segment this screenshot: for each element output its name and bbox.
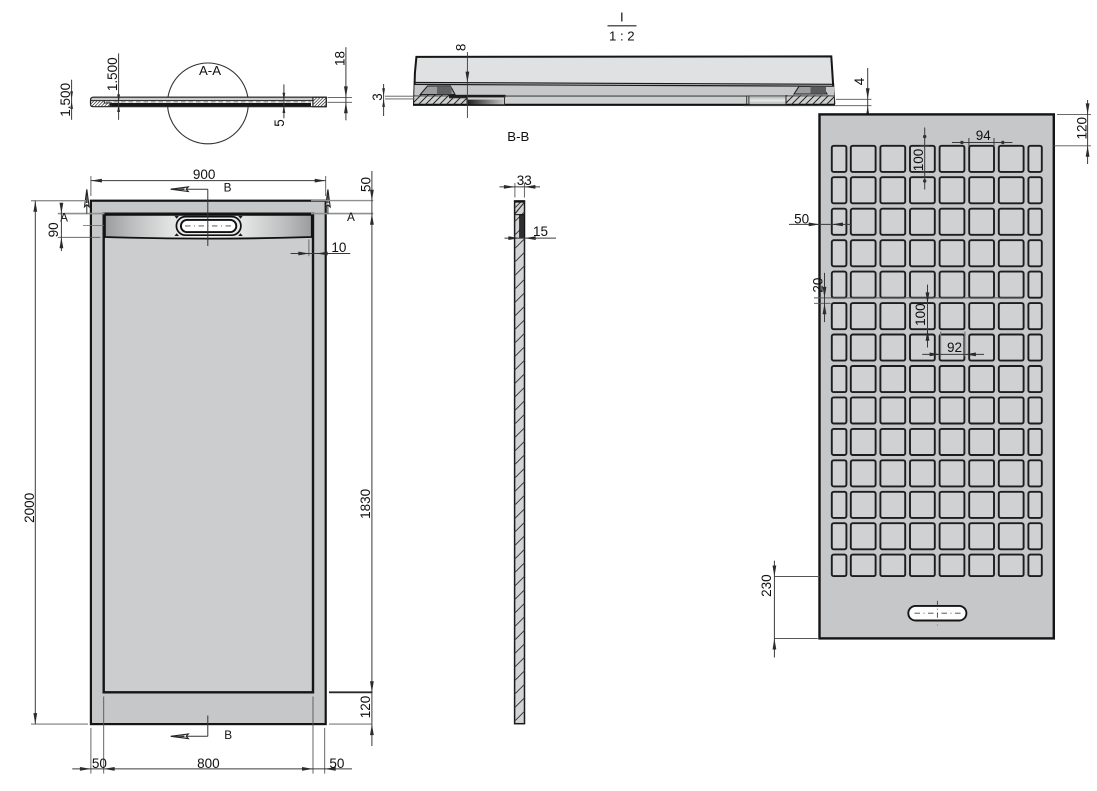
svg-text:10: 10 xyxy=(331,240,346,255)
svg-text:800: 800 xyxy=(197,756,220,771)
svg-text:4: 4 xyxy=(852,77,867,85)
svg-text:3: 3 xyxy=(370,93,385,101)
svg-text:90: 90 xyxy=(46,222,61,237)
svg-text:8: 8 xyxy=(454,44,469,52)
svg-text:5: 5 xyxy=(272,119,287,127)
svg-text:900: 900 xyxy=(193,167,216,182)
svg-text:B: B xyxy=(224,728,232,742)
svg-text:B: B xyxy=(224,181,232,195)
svg-text:50: 50 xyxy=(794,211,809,226)
svg-text:15: 15 xyxy=(533,224,548,239)
svg-text:92: 92 xyxy=(947,340,962,355)
svg-text:94: 94 xyxy=(976,128,992,143)
svg-text:33: 33 xyxy=(517,173,532,188)
svg-text:A-A: A-A xyxy=(199,63,221,78)
svg-text:1.500: 1.500 xyxy=(58,83,73,117)
svg-text:1830: 1830 xyxy=(358,489,373,519)
svg-text:20: 20 xyxy=(810,278,825,293)
svg-text:18: 18 xyxy=(333,51,348,66)
svg-text:B-B: B-B xyxy=(507,129,529,144)
svg-text:A: A xyxy=(347,210,355,224)
svg-text:100: 100 xyxy=(911,149,926,172)
svg-text:50: 50 xyxy=(329,756,344,771)
svg-text:1.500: 1.500 xyxy=(105,57,120,91)
svg-text:2000: 2000 xyxy=(22,493,37,523)
svg-text:1 : 2: 1 : 2 xyxy=(609,29,635,44)
svg-text:230: 230 xyxy=(759,574,774,597)
svg-text:120: 120 xyxy=(358,696,373,719)
svg-text:I: I xyxy=(620,9,624,24)
svg-text:120: 120 xyxy=(1075,117,1090,140)
svg-text:100: 100 xyxy=(913,303,928,326)
svg-text:50: 50 xyxy=(358,177,373,192)
